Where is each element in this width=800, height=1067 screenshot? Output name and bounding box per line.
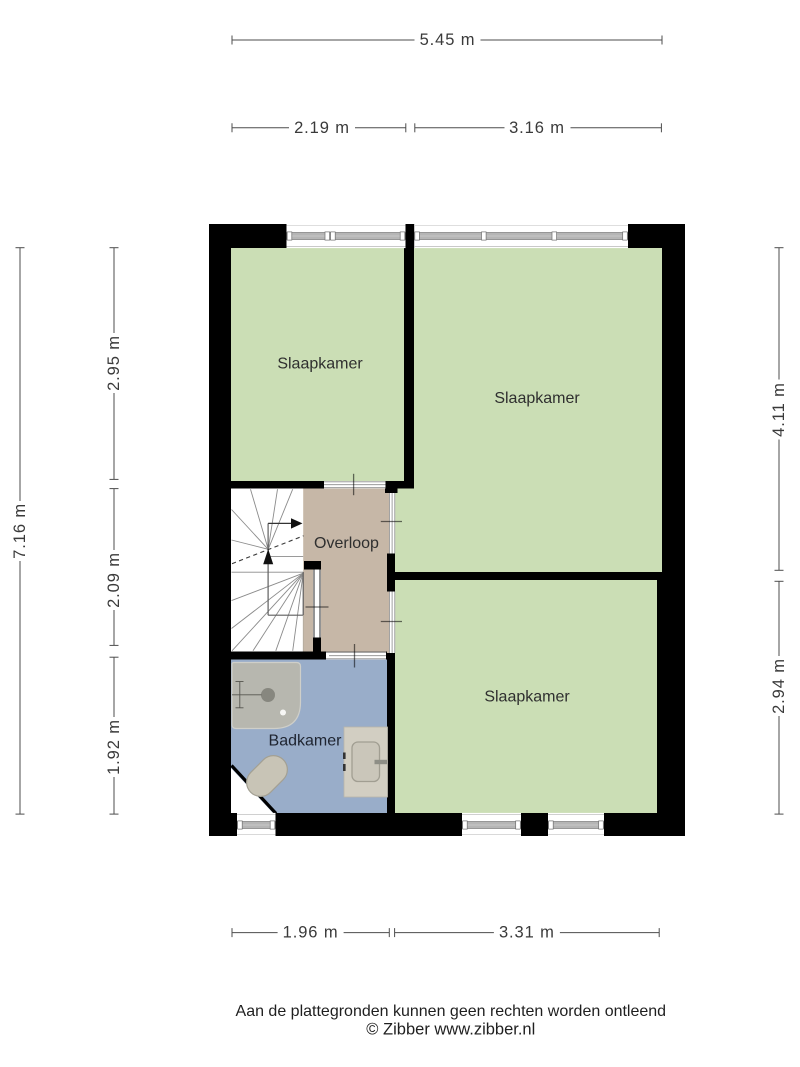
svg-text:3.31 m: 3.31 m [499, 924, 555, 942]
svg-text:2.19 m: 2.19 m [294, 119, 350, 137]
svg-text:7.16 m: 7.16 m [11, 503, 29, 559]
svg-text:3.16 m: 3.16 m [509, 119, 565, 137]
svg-text:2.94 m: 2.94 m [770, 658, 788, 714]
svg-text:4.11 m: 4.11 m [770, 382, 788, 437]
svg-text:Slaapkamer: Slaapkamer [277, 356, 363, 373]
svg-text:Slaapkamer: Slaapkamer [494, 390, 580, 407]
svg-text:2.95 m: 2.95 m [105, 335, 123, 391]
svg-text:Overloop: Overloop [314, 535, 379, 552]
svg-text:© Zibber www.zibber.nl: © Zibber www.zibber.nl [366, 1021, 535, 1039]
svg-text:Aan de plattegronden kunnen ge: Aan de plattegronden kunnen geen rechten… [236, 1003, 667, 1020]
svg-text:1.92 m: 1.92 m [105, 719, 123, 775]
svg-text:5.45 m: 5.45 m [420, 31, 476, 49]
svg-text:Slaapkamer: Slaapkamer [484, 689, 570, 706]
svg-text:1.96 m: 1.96 m [283, 924, 339, 942]
svg-text:2.09 m: 2.09 m [105, 552, 123, 608]
svg-text:Badkamer: Badkamer [269, 733, 343, 750]
